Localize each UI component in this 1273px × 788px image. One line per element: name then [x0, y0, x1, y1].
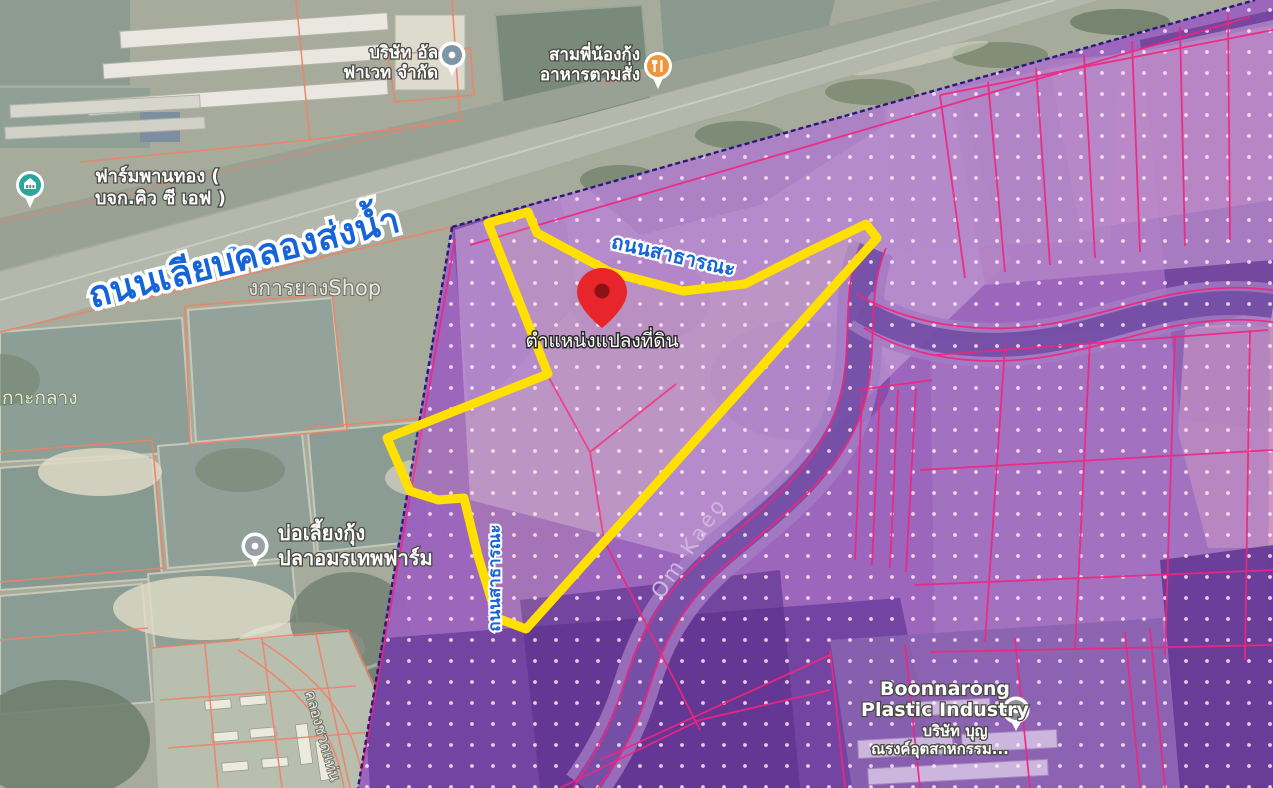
island-label: กาะกลาง [2, 387, 77, 409]
svg-text:บ่อเลี้ยงกุ้ง: บ่อเลี้ยงกุ้ง [278, 518, 365, 546]
poi-label-restaurant[interactable]: สามพี่น้องกุ้ง อาหารตามสั่ง [540, 42, 640, 85]
poi-label-factory[interactable]: Boonnarong Plastic Industry บริษัท บุญ ณ… [861, 678, 1030, 759]
map-canvas[interactable]: งการยางShop ถนนเลียบคลองส่งน้ำ ถนนสาธารณ… [0, 0, 1273, 788]
svg-text:Plastic Industry: Plastic Industry [861, 699, 1030, 721]
svg-text:ณรงค์อุตสาหกรรม...: ณรงค์อุตสาหกรรม... [871, 740, 1009, 759]
rubber-shop-label[interactable]: งการยางShop [248, 276, 381, 300]
public-road-west-label: ถนนสาธารณะ [485, 524, 505, 631]
svg-text:ฟาเวท จำกัด: ฟาเวท จำกัด [343, 63, 438, 83]
svg-text:บจก.คิว ซี เอฟ ): บจก.คิว ซี เอฟ ) [95, 188, 226, 209]
svg-text:บริษัท บุญ: บริษัท บุญ [923, 722, 988, 741]
svg-text:ปลาอมรเทพฟาร์ม: ปลาอมรเทพฟาร์ม [278, 546, 433, 570]
svg-text:ฟาร์มพานทอง (: ฟาร์มพานทอง ( [95, 165, 220, 187]
svg-text:Boonnarong: Boonnarong [880, 678, 1010, 700]
pin-label: ตำแหน่งแปลงที่ดิน [525, 327, 678, 352]
svg-text:บริษัท อัล: บริษัท อัล [369, 43, 438, 63]
svg-text:อาหารตามสั่ง: อาหารตามสั่ง [540, 62, 640, 85]
map-graphics: งการยางShop ถนนเลียบคลองส่งน้ำ ถนนสาธารณ… [0, 0, 1273, 788]
svg-text:สามพี่น้องกุ้ง: สามพี่น้องกุ้ง [549, 42, 640, 65]
